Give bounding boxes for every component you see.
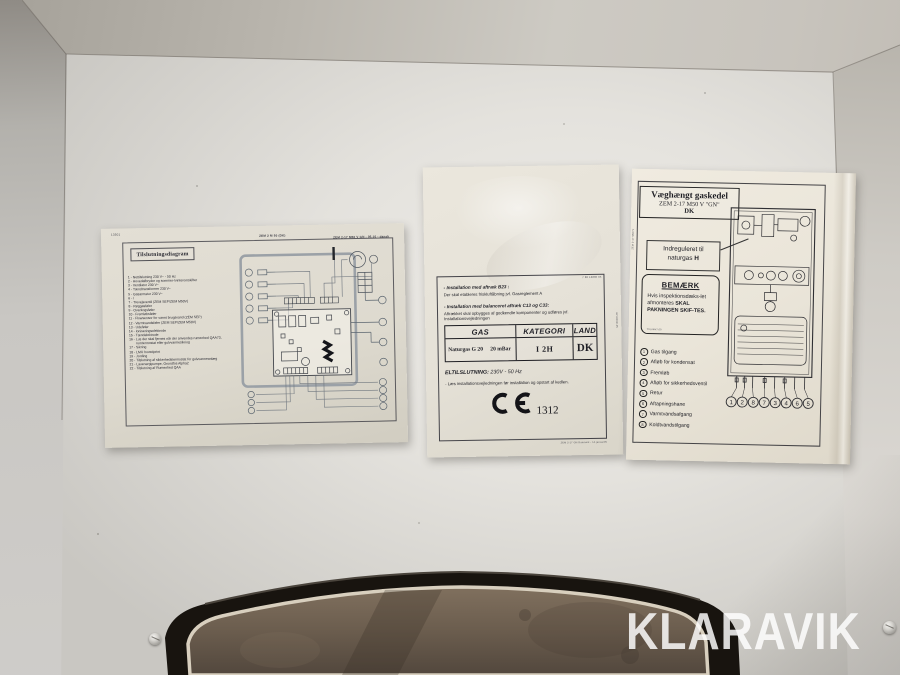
country-code: DK — [641, 206, 737, 215]
read-manual-note: - Læs installationsvejledningen før inst… — [445, 379, 569, 386]
legend-label: Koldtvandstilgang — [649, 422, 689, 429]
valve-cluster — [764, 284, 777, 311]
gas-table: GAS KATEGORI LAND Naturgas G 20 20 mBar … — [444, 323, 598, 362]
power-value: 230V - 50 Hz — [490, 369, 522, 375]
callout-gas-type: H — [694, 255, 699, 262]
legend-number-circle: 8 — [639, 421, 647, 429]
legend-label: Afløb for sikkerhedsventil — [650, 380, 707, 387]
boiler-type-label: Væghængt gaskedel ZEM 2-17 M50 V "GN" DK… — [626, 169, 856, 465]
main-pcb — [273, 309, 352, 376]
micro-print: ZEM 2 M 50 (DK) — [259, 233, 286, 238]
legend-item: 6 Aftapningshane — [639, 401, 707, 408]
svg-text:7: 7 — [762, 401, 766, 407]
legend-label: Varmtvandsafgang — [649, 411, 692, 418]
screw — [883, 621, 896, 634]
svg-text:8: 8 — [751, 401, 755, 407]
micro-print: 8719002135 — [615, 313, 618, 328]
power-label: ELTILSLUTNING: — [445, 370, 489, 377]
boiler-type-heading: Væghængt gaskedel — [641, 189, 737, 201]
category-value: I 2H — [516, 337, 573, 360]
legend-number-circle: 2 — [640, 358, 648, 366]
micro-print: TXU/M47.00 — [647, 329, 662, 331]
klaravik-watermark: KLARAVIK — [626, 602, 861, 662]
note-title: BEMÆRK — [643, 280, 719, 291]
legend-item: 1 Gas tilgang — [640, 349, 708, 356]
callout-line2: naturgas — [667, 255, 694, 263]
section-body-c13: Aftrækket skal opbygges af godkendte kom… — [444, 309, 596, 322]
svg-text:2: 2 — [740, 400, 744, 406]
svg-text:6: 6 — [795, 401, 799, 407]
micro-print: ZEM 2-17 GN Danmark - 14.januar05 — [561, 441, 608, 445]
legend-label: Gas tilgang — [651, 349, 677, 356]
dust-specks — [0, 0, 2, 2]
svg-text:5: 5 — [806, 402, 810, 408]
bottom-terminals — [248, 378, 387, 413]
legend-item: 5 Retur — [639, 390, 707, 397]
legend-number-circle: 3 — [640, 369, 648, 377]
col-kategori: KATEGORI — [516, 324, 573, 337]
top-components — [738, 214, 811, 242]
connector-strips — [284, 297, 338, 304]
legend-item: 4 Afløb for sikkerhedsventil — [640, 380, 708, 387]
legend-label: Afløb for kondensat — [651, 359, 695, 366]
diagram-title-text: Tilslutningsdiagram — [136, 251, 188, 258]
legend-item: 8 Koldtvandstilgang — [639, 422, 707, 429]
connection-legend: 1 Gas tilgang 2 Afløb for kondensat 3 Fr… — [639, 349, 708, 434]
col-land: LAND — [573, 324, 596, 336]
callout-line1: Indreguleret til — [663, 245, 704, 253]
label-frame: Tilslutningsdiagram 1 - Nettilslutning 2… — [122, 237, 396, 426]
legend-item: 2 Afløb for kondensat — [640, 359, 708, 366]
section-body-b23: Der skal etableres friskluftåbning jvf. … — [444, 290, 596, 298]
legend-number-circle: 6 — [639, 400, 647, 408]
legend-label: Retur — [650, 390, 663, 396]
legend-number-circle: 4 — [640, 379, 648, 387]
notified-body-number: 1312 — [536, 404, 558, 416]
legend-number-circle: 1 — [640, 348, 648, 356]
diagram-title: Tilslutningsdiagram — [130, 247, 194, 261]
svg-text:1: 1 — [729, 400, 733, 406]
left-sensors — [245, 268, 277, 324]
gas-table-row: Naturgas G 20 20 mBar I 2H DK — [445, 337, 596, 361]
number-circles — [726, 397, 813, 409]
bottom-pipes — [735, 376, 805, 389]
micro-print: 7 86 12800 05 — [582, 276, 601, 279]
ce-marking: 1312 — [489, 389, 558, 416]
legend-item: 7 Varmtvandsafgang — [639, 411, 707, 418]
label-frame: Væghængt gaskedel ZEM 2-17 M50 V "GN" DK… — [632, 181, 825, 447]
gas-type-value: Naturgas G 20 — [445, 339, 485, 362]
wiring-diagram-label: 13501 ZEM 2 M 50 (DK) ZEM 2-17 M50 V GN … — [101, 223, 408, 448]
gas-category-label: 7 86 12800 05 - Installation med aftræk … — [423, 164, 624, 457]
note-box: BEMÆRK Hvis inspektionsdæks-let afmonter… — [641, 274, 720, 336]
micro-print: 13501 — [111, 233, 120, 237]
heat-exchanger — [734, 316, 807, 365]
section-heading-b23: - Installation med aftræk B23 : — [444, 284, 510, 290]
legend-number-circle: 7 — [639, 410, 647, 418]
boiler-cabinet-photo: 13501 ZEM 2 M 50 (DK) ZEM 2-17 M50 V GN … — [0, 0, 900, 675]
svg-text:4: 4 — [784, 401, 788, 407]
legend-label: Fremløb — [650, 370, 669, 376]
svg-text:3: 3 — [773, 401, 777, 407]
legend-number-circle: 5 — [639, 389, 647, 397]
section-heading-c13: - Installation med balanceret aftræk C13… — [444, 303, 549, 310]
legend-item: 3 Fremløb — [640, 370, 708, 377]
screw — [149, 633, 161, 645]
legend-label: Aftapningshane — [650, 401, 686, 408]
wiring-legend: 1 - Nettilslutning 230 V~ - 50 Hz2 - Hov… — [128, 273, 242, 370]
wiring-schematic — [237, 241, 392, 419]
country-value: DK — [573, 337, 596, 359]
micro-print: ZEM 2-17 M50 V — [631, 229, 634, 250]
bottom-wires — [256, 374, 379, 410]
gas-adjustment-callout: Indreguleret til naturgas H — [646, 240, 721, 272]
gas-pressure-value: 20 mBar — [485, 338, 516, 360]
label-frame: 7 86 12800 05 - Installation med aftræk … — [436, 274, 607, 442]
col-gas: GAS — [445, 325, 516, 338]
gas-valve-block — [358, 272, 372, 292]
power-connection-line: ELTILSLUTNING: 230V - 50 Hz — [445, 369, 522, 376]
note-body: Hvis inspektionsdæks-let afmonteres SKAL… — [647, 293, 714, 315]
boiler-cutaway-diagram: 1 2 8 7 3 4 6 5 — [720, 204, 824, 411]
control-band — [735, 266, 809, 286]
ce-mark-icon — [489, 390, 533, 417]
